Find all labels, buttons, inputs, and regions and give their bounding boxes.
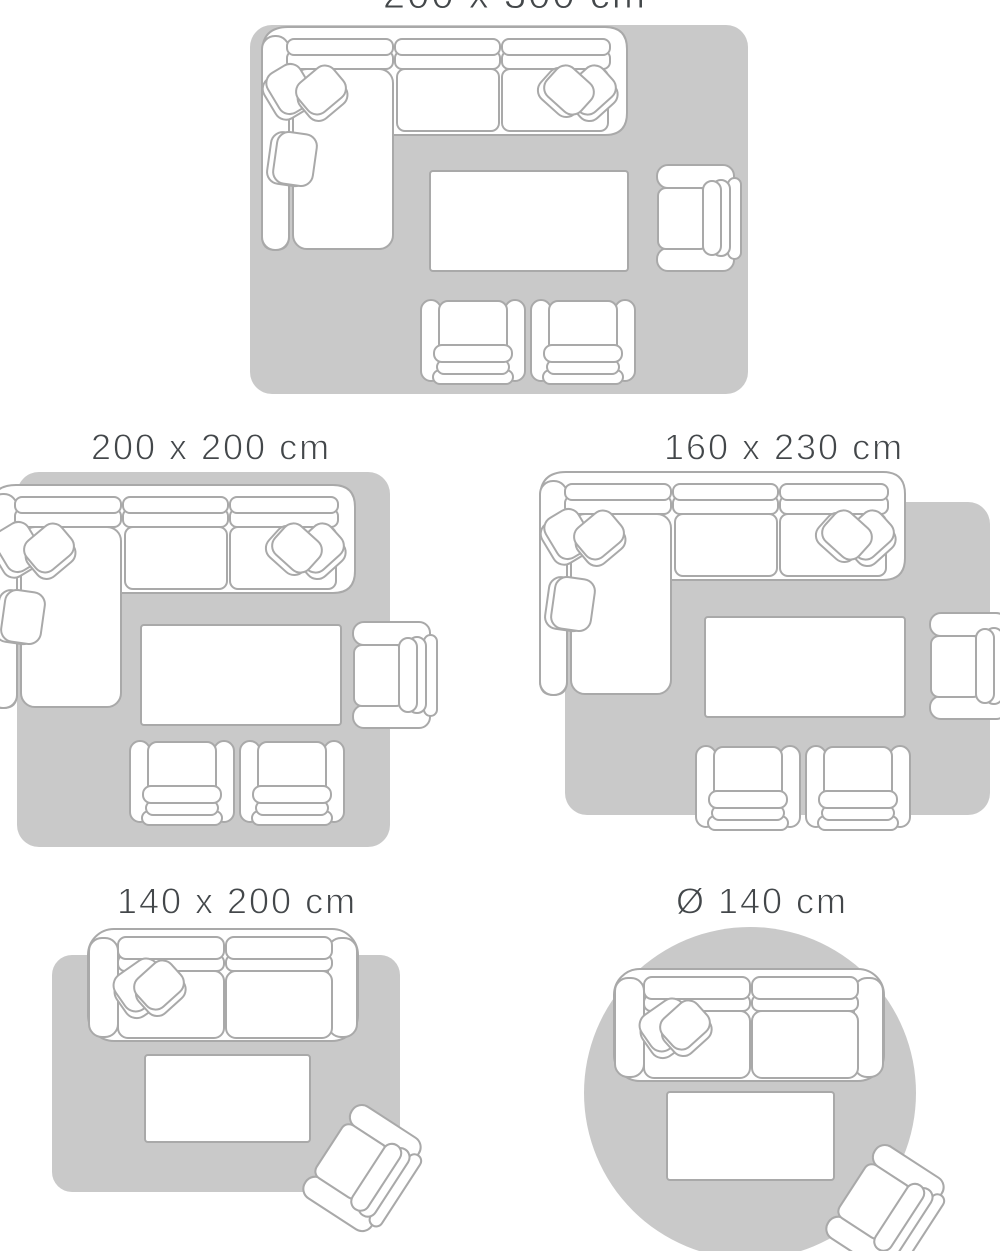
- svg-text:Ø 140 cm: Ø 140 cm: [676, 881, 848, 922]
- svg-text:140 x 200 cm: 140 x 200 cm: [117, 881, 357, 922]
- svg-text:160 x 230 cm: 160 x 230 cm: [664, 427, 904, 468]
- svg-text:200 x 200 cm: 200 x 200 cm: [91, 427, 331, 468]
- svg-text:200 x 300 cm: 200 x 300 cm: [383, 0, 647, 17]
